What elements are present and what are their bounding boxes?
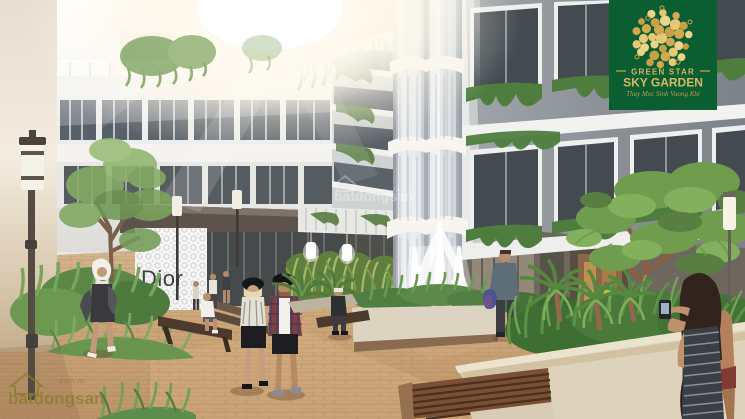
- svg-text:com.vn: com.vn: [60, 376, 84, 385]
- svg-text:.com.vn: .com.vn: [392, 186, 415, 193]
- svg-text:batdongsan: batdongsan: [8, 389, 104, 408]
- svg-text:Thuy Moc Sinh Vuong Khi: Thuy Moc Sinh Vuong Khi: [626, 90, 700, 98]
- svg-text:SKY GARDEN: SKY GARDEN: [623, 76, 703, 90]
